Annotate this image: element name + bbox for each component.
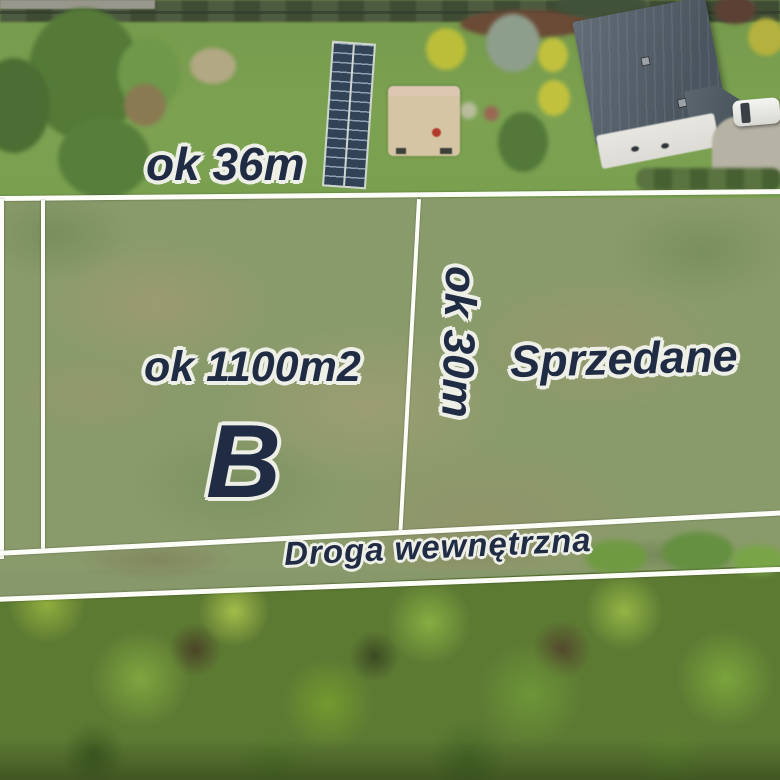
depth-dimension-label: ok 30m — [434, 265, 482, 418]
bush — [58, 118, 150, 198]
blue-spruce-tree — [486, 14, 540, 72]
red-toy — [432, 128, 441, 137]
garden-strip — [0, 0, 780, 198]
yellow-bush — [748, 18, 780, 56]
yellow-bush — [538, 38, 568, 72]
sand-patch — [190, 48, 236, 84]
patio-stone — [484, 106, 499, 121]
sandbox-edge — [440, 148, 452, 154]
sandbox — [388, 86, 460, 156]
stone-circle — [460, 102, 477, 119]
plot-area-label: ok 1100m2 — [144, 346, 361, 389]
depth-dimension-label-wrap: ok 30m — [432, 265, 482, 436]
sandbox-edge — [396, 148, 406, 154]
dry-shrub — [124, 84, 166, 126]
solar-panel-array — [322, 41, 376, 190]
car — [732, 97, 780, 127]
tree-overhang — [585, 540, 647, 574]
yellow-bush — [538, 80, 570, 116]
car-windshield — [740, 103, 751, 124]
plot-letter-label: B — [206, 410, 281, 514]
hedge-row — [636, 168, 780, 190]
bush — [498, 112, 548, 172]
boundary-line-left-edge — [0, 199, 4, 559]
tree-overhang — [662, 532, 734, 572]
yellow-bush — [426, 28, 466, 70]
boundary-line-left — [41, 200, 45, 550]
sold-label: Sprzedane — [509, 333, 738, 384]
aerial-photo: ok 36m ok 1100m2 B ok 30m Sprzedane Drog… — [0, 0, 780, 780]
width-dimension-label: ok 36m — [146, 141, 305, 187]
chimney — [640, 56, 651, 67]
solar-panel-divider — [343, 44, 355, 186]
